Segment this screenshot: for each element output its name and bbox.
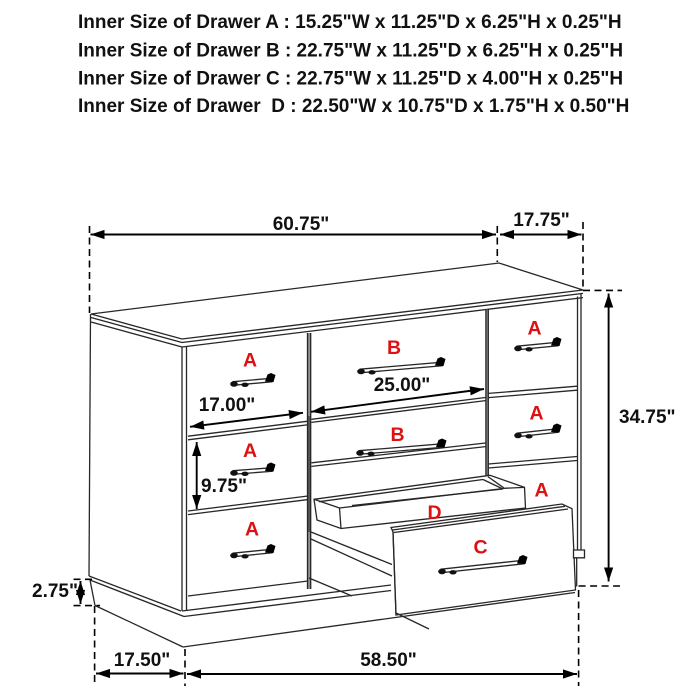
svg-text:A: A bbox=[243, 440, 257, 462]
svg-text:9.75": 9.75" bbox=[201, 476, 247, 497]
svg-text:A: A bbox=[245, 519, 259, 541]
svg-text:2.75": 2.75" bbox=[32, 581, 78, 602]
svg-text:25.00": 25.00" bbox=[374, 375, 431, 396]
svg-text:B: B bbox=[391, 424, 405, 446]
svg-text:Inner Size of Drawer D : 22.5: Inner Size of Drawer D : 22.50"W x 10.75… bbox=[78, 96, 629, 117]
svg-text:A: A bbox=[243, 350, 257, 372]
svg-text:B: B bbox=[387, 337, 401, 359]
svg-text:17.50": 17.50" bbox=[114, 650, 171, 671]
svg-text:A: A bbox=[528, 318, 542, 340]
svg-text:C: C bbox=[474, 537, 488, 559]
svg-text:A: A bbox=[530, 403, 544, 425]
svg-text:58.50": 58.50" bbox=[360, 650, 417, 671]
svg-text:Inner Size of Drawer C : 22.75: Inner Size of Drawer C : 22.75"W x 11.25… bbox=[78, 69, 623, 90]
svg-text:Inner Size of Drawer B : 22.75: Inner Size of Drawer B : 22.75"W x 11.25… bbox=[78, 41, 623, 62]
svg-text:A: A bbox=[535, 480, 549, 502]
svg-text:17.00": 17.00" bbox=[199, 395, 256, 416]
svg-text:D: D bbox=[428, 502, 442, 524]
svg-text:34.75": 34.75" bbox=[619, 407, 676, 428]
svg-text:17.75": 17.75" bbox=[513, 210, 570, 231]
svg-text:Inner Size of Drawer A : 15.25: Inner Size of Drawer A : 15.25"W x 11.25… bbox=[78, 12, 622, 33]
svg-text:60.75": 60.75" bbox=[273, 214, 330, 235]
